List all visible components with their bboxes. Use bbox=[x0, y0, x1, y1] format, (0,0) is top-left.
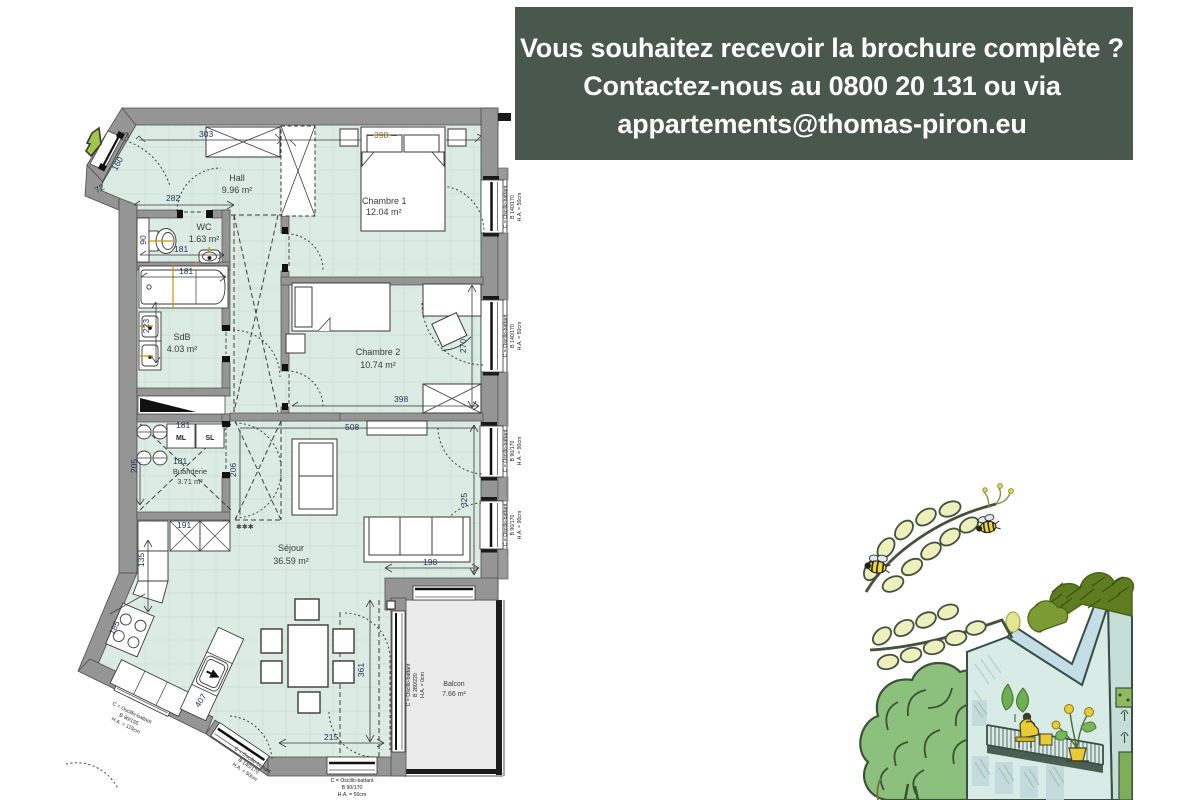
svg-text:206: 206 bbox=[228, 463, 238, 477]
svg-text:ML: ML bbox=[176, 435, 187, 442]
svg-text:181: 181 bbox=[174, 244, 188, 254]
svg-text:198: 198 bbox=[423, 557, 437, 567]
svg-text:215: 215 bbox=[324, 732, 338, 742]
svg-text:181: 181 bbox=[173, 456, 187, 466]
svg-text:SL: SL bbox=[206, 435, 216, 442]
svg-text:H.A. = 50cm: H.A. = 50cm bbox=[517, 322, 523, 351]
svg-text:B 90/170: B 90/170 bbox=[510, 515, 516, 536]
svg-text:181: 181 bbox=[176, 420, 190, 430]
svg-text:✱✱✱: ✱✱✱ bbox=[236, 523, 254, 531]
svg-text:36.59 m²: 36.59 m² bbox=[273, 556, 309, 566]
svg-text:205: 205 bbox=[129, 459, 139, 473]
svg-text:325: 325 bbox=[459, 493, 469, 507]
svg-text:398: 398 bbox=[374, 130, 388, 140]
svg-text:WC: WC bbox=[197, 222, 212, 232]
svg-text:3.71 m²: 3.71 m² bbox=[177, 477, 203, 486]
svg-text:508: 508 bbox=[345, 422, 359, 432]
svg-text:90: 90 bbox=[138, 235, 148, 245]
svg-text:C = Oscillo-battant: C = Oscillo-battant bbox=[331, 778, 374, 784]
svg-text:C = Oscillo-battant: C = Oscillo-battant bbox=[503, 314, 509, 357]
svg-text:C = Oscillo-battant: C = Oscillo-battant bbox=[503, 429, 509, 472]
svg-text:B 140/170: B 140/170 bbox=[510, 324, 516, 348]
svg-text:Vous souhaitez recevoir la bro: Vous souhaitez recevoir la brochure comp… bbox=[520, 33, 1124, 63]
svg-text:C = Oscillo-battant: C = Oscillo-battant bbox=[503, 503, 509, 546]
svg-text:B 140/170: B 140/170 bbox=[510, 195, 516, 219]
svg-text:Buanderie: Buanderie bbox=[173, 467, 207, 476]
svg-text:C = Oscillo-battant: C = Oscillo-battant bbox=[406, 663, 412, 706]
svg-text:H.A. = 90cm: H.A. = 90cm bbox=[517, 437, 523, 466]
svg-text:H.A. = 0cm: H.A. = 0cm bbox=[420, 672, 426, 698]
svg-text:12.04 m²: 12.04 m² bbox=[366, 207, 402, 217]
svg-text:B 90/170: B 90/170 bbox=[342, 785, 363, 791]
svg-text:B 280/220: B 280/220 bbox=[413, 673, 419, 697]
svg-text:9.96 m²: 9.96 m² bbox=[222, 185, 253, 195]
svg-text:398: 398 bbox=[394, 394, 408, 404]
svg-text:1.63 m²: 1.63 m² bbox=[189, 234, 220, 244]
svg-text:135: 135 bbox=[136, 553, 146, 567]
svg-text:H.A. = 50cm: H.A. = 50cm bbox=[338, 792, 367, 798]
svg-text:361: 361 bbox=[356, 663, 366, 677]
svg-text:270: 270 bbox=[458, 339, 468, 353]
svg-text:181: 181 bbox=[179, 266, 193, 276]
svg-text:7.66 m²: 7.66 m² bbox=[442, 691, 466, 698]
svg-text:191: 191 bbox=[177, 520, 191, 530]
svg-text:H.A. = 50cm: H.A. = 50cm bbox=[517, 193, 523, 222]
svg-text:C = Oscillo-battant: C = Oscillo-battant bbox=[503, 185, 509, 228]
svg-text:303: 303 bbox=[199, 129, 213, 139]
svg-text:10.74 m²: 10.74 m² bbox=[360, 360, 396, 370]
svg-text:Contactez-nous au 0800 20 131: Contactez-nous au 0800 20 131 ou via bbox=[583, 71, 1062, 101]
svg-text:223: 223 bbox=[141, 319, 151, 333]
svg-text:SdB: SdB bbox=[173, 332, 190, 342]
svg-text:Hall: Hall bbox=[229, 173, 245, 183]
svg-text:appartements@thomas-piron.eu: appartements@thomas-piron.eu bbox=[617, 109, 1026, 139]
svg-text:Balcon: Balcon bbox=[443, 681, 465, 688]
svg-text:4.03 m²: 4.03 m² bbox=[167, 344, 198, 354]
svg-text:H.A. = 90cm: H.A. = 90cm bbox=[517, 511, 523, 540]
svg-text:Séjour: Séjour bbox=[278, 543, 304, 553]
svg-text:282: 282 bbox=[166, 193, 180, 203]
svg-text:Chambre 2: Chambre 2 bbox=[356, 347, 401, 357]
svg-text:B 90/170: B 90/170 bbox=[510, 441, 516, 462]
svg-text:Chambre 1: Chambre 1 bbox=[362, 196, 407, 206]
